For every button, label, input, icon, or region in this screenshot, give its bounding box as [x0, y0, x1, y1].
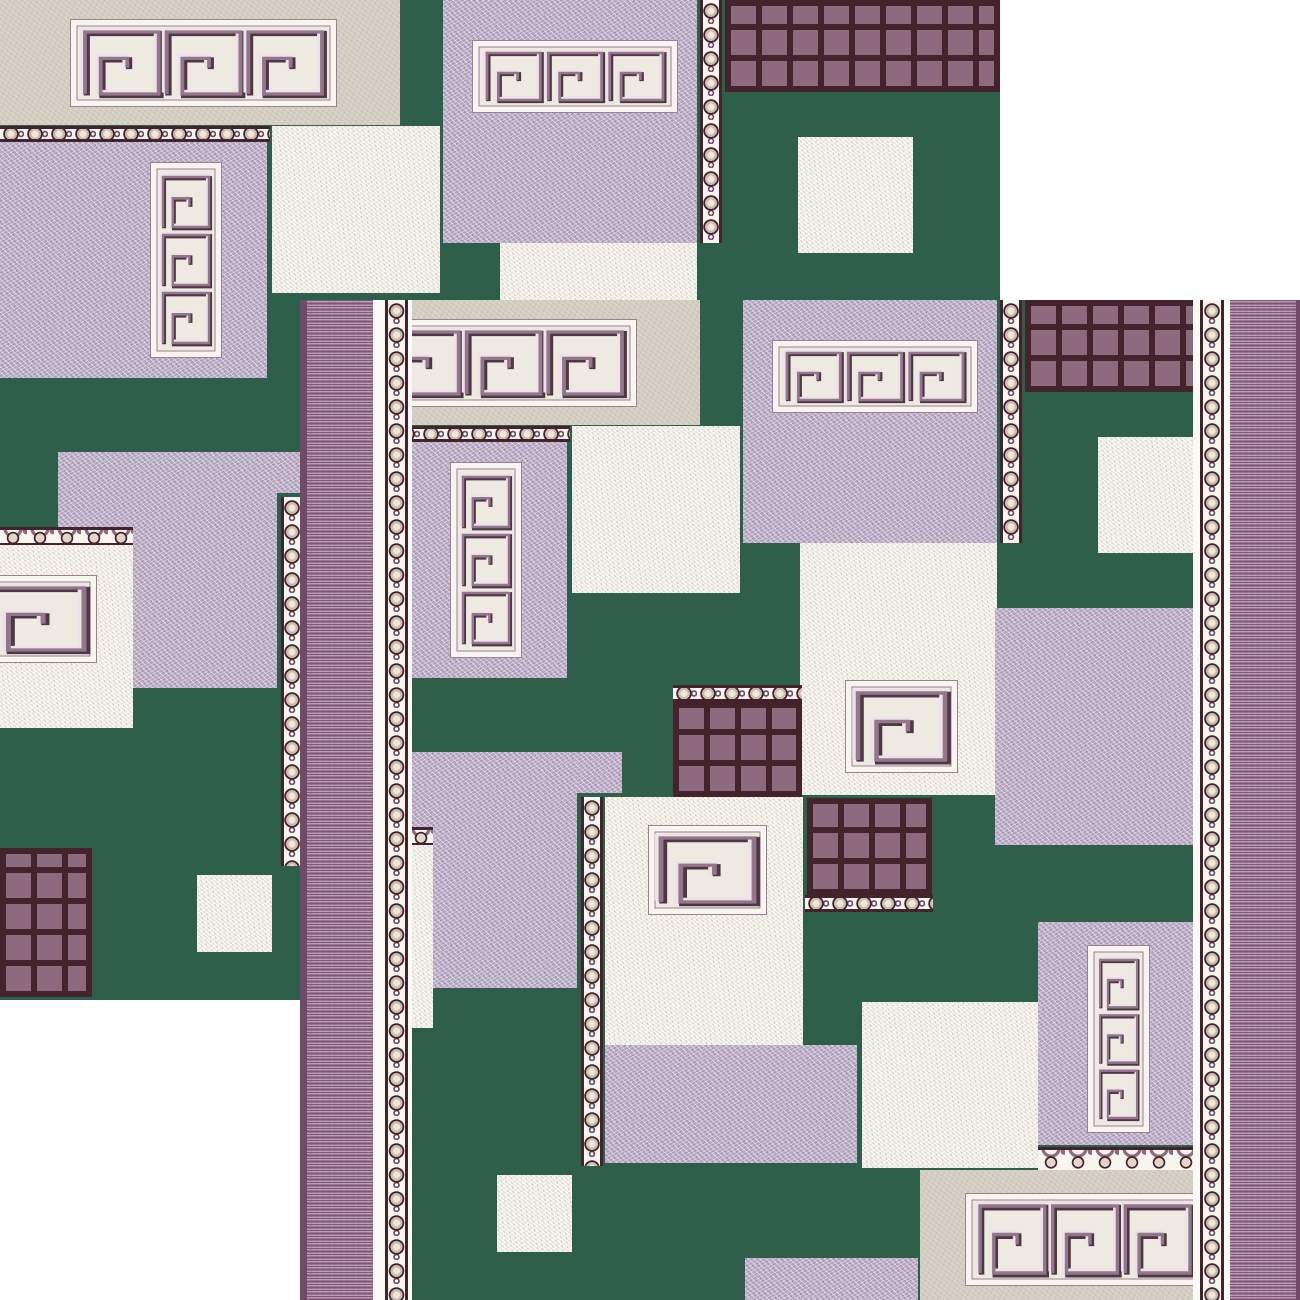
bead-border-column: [700, 0, 722, 243]
greek-key-frieze-motif: [772, 340, 978, 413]
bead-border-column: [385, 300, 408, 1300]
greek-key-spiral-motif: [648, 825, 767, 915]
beige-frieze-panel: [0, 0, 400, 125]
greek-key-spiral-motif: [0, 575, 97, 663]
lavender-column-panel: [1038, 922, 1193, 1145]
cream-square: [197, 875, 272, 952]
greek-key-frieze-motif: [472, 40, 678, 113]
bead-border-row: [673, 685, 802, 702]
carpet-pattern-collage: [0, 0, 1300, 1300]
rug-piece-front-bottom-right: [300, 300, 1300, 1300]
greek-key-frieze-motif: [965, 1193, 1205, 1286]
greek-key-column-motif: [1087, 945, 1150, 1133]
waffle-grid-panel: [673, 702, 802, 797]
waffle-grid-panel: [0, 848, 92, 997]
lavender-panel: [995, 608, 1220, 845]
border-gap: [1193, 300, 1200, 1300]
cream-panel: [862, 1002, 1038, 1168]
cream-spiral-panel: [0, 545, 133, 728]
cream-spiral-panel: [605, 797, 803, 1045]
border-gap: [408, 300, 412, 1300]
lavender-frieze-panel: [443, 0, 697, 243]
bead-border-row: [805, 895, 933, 912]
lavender-panel: [605, 1045, 857, 1163]
egg-dart-row: [1038, 1147, 1193, 1172]
greek-key-spiral-motif: [845, 680, 958, 773]
cream-panel: [572, 426, 740, 593]
border-gap: [373, 300, 385, 1300]
bead-border-column: [1000, 300, 1022, 543]
stripe-band-left: [300, 300, 373, 1300]
greek-key-column-motif: [150, 162, 222, 358]
bead-border-column: [581, 797, 603, 1166]
bead-border-column: [1200, 300, 1224, 1300]
greek-key-frieze-motif: [70, 19, 337, 107]
lavender-column-panel: [0, 142, 267, 378]
cream-spiral-panel: [800, 543, 997, 795]
greek-key-column-motif: [450, 462, 522, 658]
lavender-panel: [745, 1258, 918, 1300]
stripe-band-right: [1230, 300, 1300, 1300]
beige-frieze-panel: [920, 1170, 1205, 1300]
lavender-frieze-panel: [743, 300, 997, 543]
egg-dart-row: [0, 527, 133, 545]
waffle-grid-panel: [807, 798, 932, 895]
cream-square: [798, 137, 913, 253]
waffle-grid-panel: [725, 0, 1000, 92]
lavender-tab: [577, 752, 622, 793]
cream-panel: [272, 126, 440, 293]
bead-border-row: [0, 126, 270, 142]
cream-square: [497, 1175, 572, 1252]
